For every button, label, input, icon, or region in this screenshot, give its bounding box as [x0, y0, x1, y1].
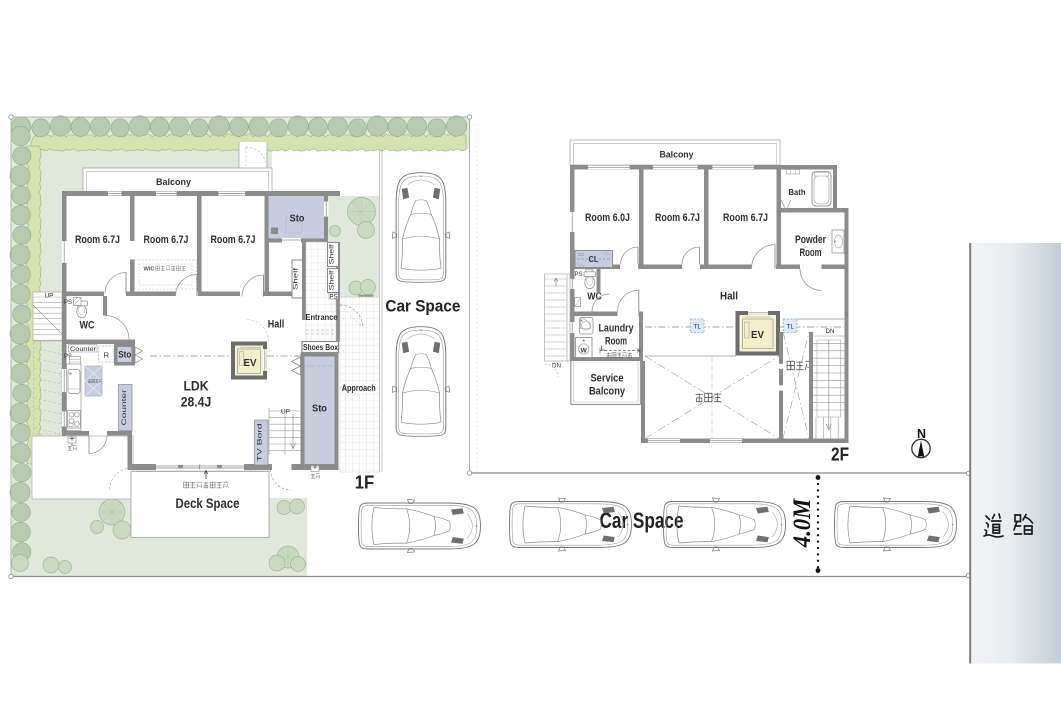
svg-text:WIC: WIC — [144, 266, 155, 272]
svg-text:PS: PS — [575, 271, 583, 278]
svg-text:DN: DN — [552, 362, 561, 369]
svg-text:4.0M: 4.0M — [789, 498, 816, 548]
svg-text:1F: 1F — [355, 471, 375, 492]
svg-text:Hall: Hall — [268, 319, 285, 331]
svg-text:Car Space: Car Space — [385, 297, 460, 316]
svg-text:Shoes Box: Shoes Box — [303, 343, 338, 352]
svg-text:Balcony: Balcony — [589, 386, 625, 398]
svg-text:Deck Space: Deck Space — [176, 496, 240, 511]
svg-text:Room 6.7J: Room 6.7J — [723, 212, 768, 224]
svg-text:TV Bord: TV Bord — [257, 423, 264, 462]
svg-text:Service: Service — [591, 373, 624, 385]
svg-text:TL: TL — [693, 323, 701, 330]
svg-text:Counter: Counter — [70, 346, 97, 353]
svg-text:PS: PS — [64, 299, 72, 306]
svg-text:Room: Room — [605, 336, 627, 348]
svg-text:Hall: Hall — [720, 290, 738, 302]
svg-text:Room 6.0J: Room 6.0J — [585, 212, 630, 224]
svg-text:R: R — [104, 351, 110, 360]
svg-text:Room 6.7J: Room 6.7J — [211, 234, 256, 246]
svg-text:WC: WC — [80, 320, 95, 332]
svg-text:Sto: Sto — [312, 403, 327, 415]
svg-text:Shelf: Shelf — [328, 244, 335, 264]
svg-text:LDK: LDK — [184, 378, 209, 394]
svg-text:Shelf: Shelf — [293, 268, 300, 290]
svg-text:Laundry: Laundry — [599, 323, 634, 335]
svg-text:Shelf: Shelf — [328, 270, 335, 290]
svg-text:2F: 2F — [831, 445, 849, 465]
svg-text:DN: DN — [826, 328, 835, 335]
svg-text:UP: UP — [281, 409, 290, 416]
svg-text:Sto: Sto — [118, 349, 131, 359]
svg-text:Counter: Counter — [121, 388, 128, 425]
svg-text:Bath: Bath — [789, 187, 806, 197]
svg-text:Room 6.7J: Room 6.7J — [75, 234, 120, 246]
svg-text:Powder: Powder — [795, 234, 827, 246]
svg-text:Balcony: Balcony — [660, 150, 695, 161]
svg-text:EV: EV — [244, 357, 257, 369]
svg-text:CL: CL — [589, 255, 599, 264]
svg-text:W: W — [581, 348, 588, 355]
svg-text:Room 6.7J: Room 6.7J — [144, 234, 189, 246]
svg-text:28.4J: 28.4J — [181, 394, 212, 410]
svg-text:Entrance: Entrance — [306, 312, 338, 322]
svg-text:PS: PS — [330, 294, 338, 300]
svg-text:EV: EV — [751, 329, 764, 341]
svg-text:Balcony: Balcony — [156, 177, 192, 188]
svg-text:UP: UP — [45, 293, 54, 300]
svg-text:Approach: Approach — [342, 383, 376, 393]
svg-text:Room: Room — [800, 247, 822, 259]
svg-text:TL: TL — [786, 323, 794, 330]
svg-text:Room 6.7J: Room 6.7J — [655, 212, 700, 224]
